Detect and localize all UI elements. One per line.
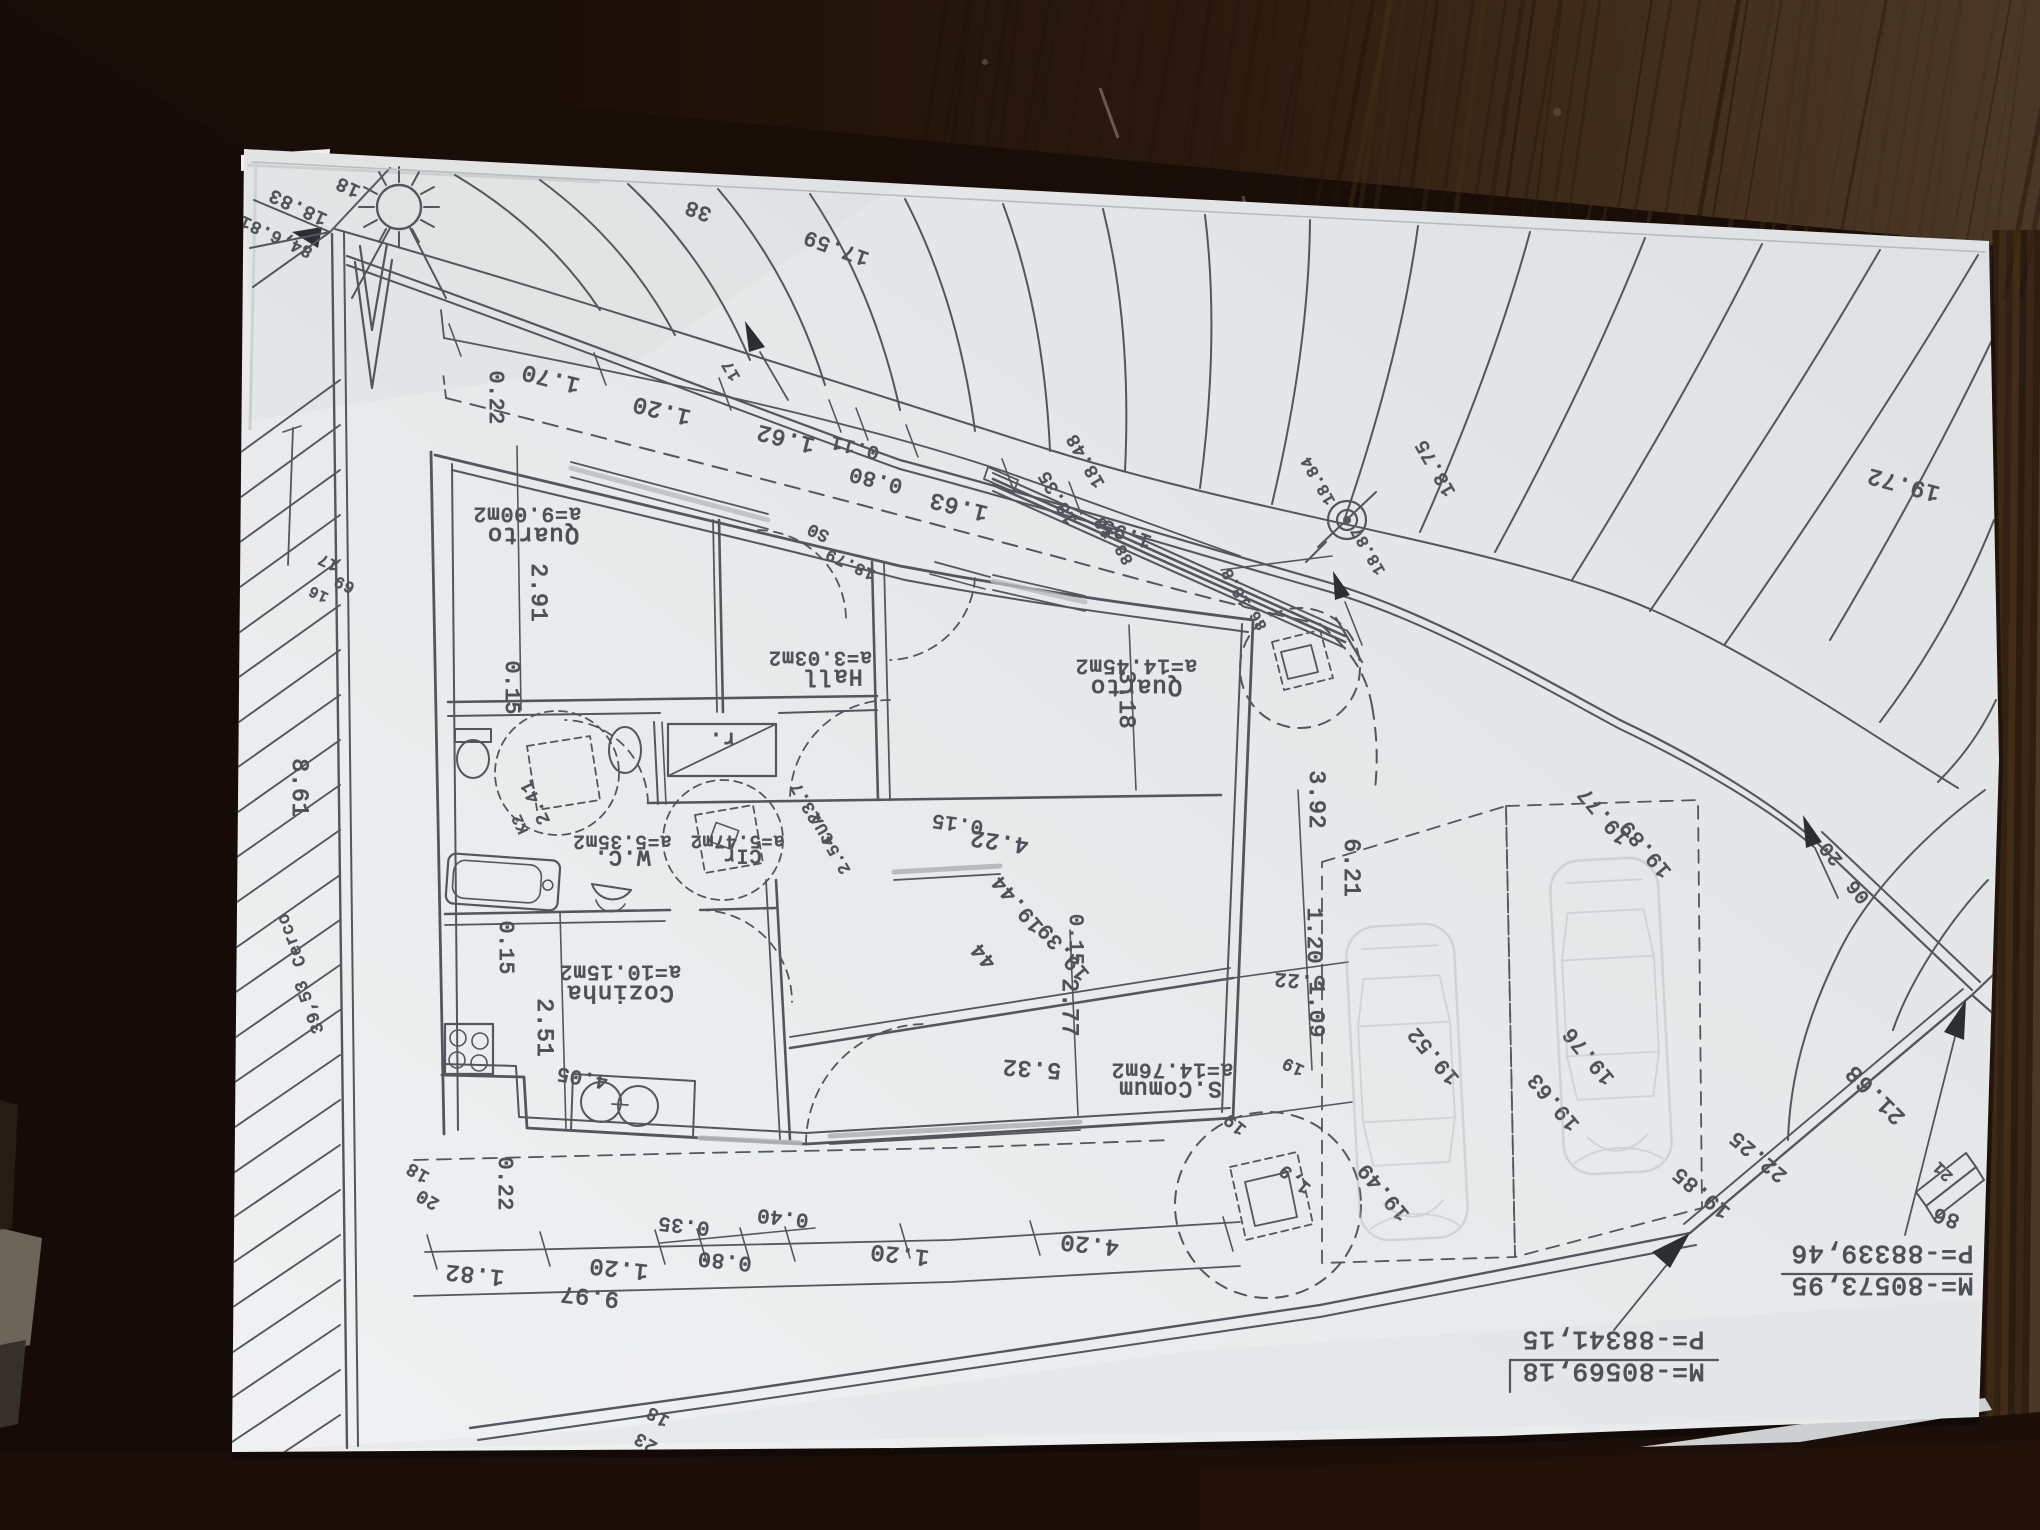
svg-text:W.C.: W.C. <box>594 844 651 869</box>
svg-text:S.Comum: S.Comum <box>1118 1075 1222 1101</box>
svg-text:CIr: CIr <box>722 843 761 866</box>
svg-text:2.91: 2.91 <box>525 563 551 622</box>
svg-text:3.92: 3.92 <box>1303 770 1329 829</box>
svg-text:P=-88339,46: P=-88339,46 <box>1791 1238 1974 1268</box>
svg-text:2.77: 2.77 <box>1056 978 1082 1037</box>
svg-text:0.22: 0.22 <box>483 371 506 425</box>
svg-text:0.22: 0.22 <box>492 1157 515 1211</box>
svg-text:r.: r. <box>709 726 735 749</box>
svg-text:2.51: 2.51 <box>531 998 557 1057</box>
svg-text:Quarto: Quarto <box>487 520 579 547</box>
svg-text:6.21: 6.21 <box>1338 838 1364 897</box>
svg-text:3.18: 3.18 <box>1113 670 1139 729</box>
svg-text:0.15: 0.15 <box>1063 914 1086 966</box>
svg-text:P=-88341,15: P=-88341,15 <box>1522 1324 1705 1354</box>
svg-text:Cozinha: Cozinha <box>566 978 674 1005</box>
svg-text:0.15: 0.15 <box>493 921 516 975</box>
svg-text:5.32: 5.32 <box>1001 1053 1062 1083</box>
svg-text:8.61: 8.61 <box>286 758 312 817</box>
svg-text:0.15: 0.15 <box>499 661 522 715</box>
svg-text:Hall: Hall <box>803 663 862 689</box>
svg-text:1.09: 1.09 <box>1303 982 1328 1039</box>
